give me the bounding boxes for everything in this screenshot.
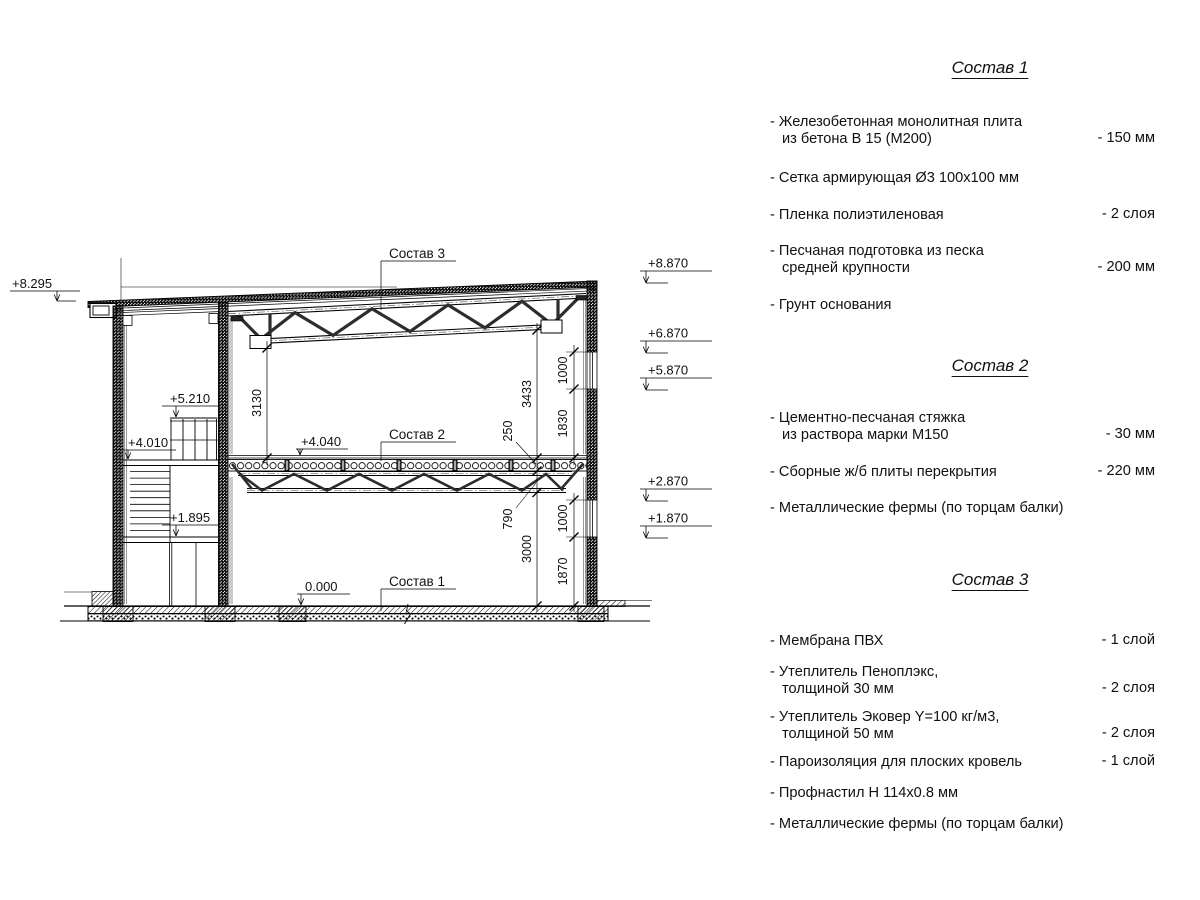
section-title-sostav1: Состав 1 bbox=[740, 58, 1200, 78]
landing-1895 bbox=[123, 537, 219, 543]
svg-text:+1.870: +1.870 bbox=[648, 511, 688, 526]
dim-1000-upper: 1000 bbox=[556, 357, 570, 385]
svg-text:+1.895: +1.895 bbox=[170, 510, 210, 525]
window-upper bbox=[587, 352, 597, 389]
dim-1870: 1870 bbox=[556, 558, 570, 586]
layer-item: - Песчаная подготовка из песка средней к… bbox=[770, 243, 1155, 277]
elevation-marks-internal: +8.295 +5.210 +4.010 +4.040 +1.895 bbox=[10, 276, 350, 605]
dimension-chain-3130: 3130 bbox=[250, 341, 272, 465]
dim-1830: 1830 bbox=[556, 410, 570, 438]
layer-value: - 150 мм bbox=[1098, 130, 1155, 147]
upper-roof-truss bbox=[228, 294, 587, 349]
layer-value: - 2 слоя bbox=[1102, 206, 1155, 223]
layer-item: - Сборные ж/б плиты перекрытия - 220 мм bbox=[770, 464, 1155, 481]
dim-790: 790 bbox=[501, 509, 515, 530]
layer-value: - 1 слой bbox=[1102, 753, 1155, 770]
elevation-marks-right: +8.870 +6.870 +5.870 +2.870 bbox=[640, 256, 712, 539]
elevation-6870: +6.870 bbox=[640, 326, 712, 354]
foundation-block bbox=[578, 606, 604, 622]
section-title-sostav3: Состав 3 bbox=[740, 570, 1200, 590]
foundation-block bbox=[279, 606, 306, 622]
svg-text:+6.870: +6.870 bbox=[648, 326, 688, 341]
svg-text:Состав 3: Состав 3 bbox=[389, 246, 445, 261]
elevation-4040: +4.040 bbox=[296, 434, 348, 455]
stair-treads bbox=[130, 466, 170, 543]
foundation-block bbox=[205, 606, 235, 622]
dim-3130: 3130 bbox=[250, 389, 264, 417]
svg-text:+2.870: +2.870 bbox=[648, 474, 688, 489]
right-wall-lower bbox=[587, 537, 597, 606]
landing-4010 bbox=[123, 460, 219, 466]
ground-floor-slab bbox=[60, 592, 652, 625]
construction-section-sheet: 3130 3433 250 790 3000 1000 1830 1000 18… bbox=[0, 0, 1200, 900]
elevation-8870: +8.870 bbox=[640, 256, 712, 284]
svg-text:+8.295: +8.295 bbox=[12, 276, 52, 291]
layer-item: - Пленка полиэтиленовая - 2 слоя bbox=[770, 207, 1155, 224]
section-title-sostav2: Состав 2 bbox=[740, 356, 1200, 376]
layer-item: - Сетка армирующая Ø3 100х100 мм bbox=[770, 170, 1155, 187]
svg-text:+4.010: +4.010 bbox=[128, 435, 168, 450]
svg-text:0.000: 0.000 bbox=[305, 579, 338, 594]
layer-value: - 200 мм bbox=[1098, 259, 1155, 276]
svg-text:Состав 1: Состав 1 bbox=[389, 574, 445, 589]
left-wall bbox=[113, 306, 123, 606]
svg-text:+5.210: +5.210 bbox=[170, 391, 210, 406]
svg-text:+4.040: +4.040 bbox=[301, 434, 341, 449]
svg-text:+8.870: +8.870 bbox=[648, 256, 688, 271]
layer-value: - 30 мм bbox=[1106, 426, 1155, 443]
elevation-1870: +1.870 bbox=[640, 511, 712, 539]
middle-wall bbox=[219, 302, 229, 606]
layer-item: - Цементно-песчаная стяжка из раствора м… bbox=[770, 410, 1155, 444]
elevation-5210: +5.210 bbox=[162, 391, 218, 417]
dim-3433: 3433 bbox=[520, 380, 534, 408]
dim-3000: 3000 bbox=[520, 535, 534, 563]
layer-value: - 2 слоя bbox=[1102, 680, 1155, 697]
layer-value: - 2 слоя bbox=[1102, 725, 1155, 742]
layer-value: - 1 слой bbox=[1102, 632, 1155, 649]
dim-250: 250 bbox=[501, 421, 515, 442]
building-section-drawing: 3130 3433 250 790 3000 1000 1830 1000 18… bbox=[0, 0, 740, 900]
layer-item: - Пароизоляция для плоских кровель - 1 с… bbox=[770, 754, 1155, 771]
left-bay-ceiling bbox=[123, 309, 219, 326]
layer-item: - Металлические фермы (по торцам балки) bbox=[770, 816, 1155, 833]
floor-slab-package bbox=[228, 456, 587, 472]
elevation-5870: +5.870 bbox=[640, 363, 712, 391]
apron-right bbox=[597, 601, 625, 607]
elevation-0000: 0.000 bbox=[297, 579, 350, 605]
eaves-gutter-box bbox=[90, 304, 116, 318]
understair-partition bbox=[170, 543, 197, 606]
layer-item: - Утеплитель Пеноплэкс, толщиной 30 мм -… bbox=[770, 664, 1155, 698]
layer-item: - Металлические фермы (по торцам балки) bbox=[770, 500, 1155, 517]
foundation-block bbox=[103, 606, 133, 622]
right-wall-upper bbox=[587, 281, 597, 352]
layer-item: - Железобетонная монолитная плита из бет… bbox=[770, 114, 1155, 148]
railing bbox=[170, 418, 218, 460]
layer-item: - Профнастил Н 114х0.8 мм bbox=[770, 785, 1155, 802]
layer-item: - Утеплитель Эковер Y=100 кг/м3, толщино… bbox=[770, 709, 1155, 743]
layer-value: - 220 мм bbox=[1098, 463, 1155, 480]
window-lower bbox=[587, 500, 597, 537]
layer-item: - Грунт основания bbox=[770, 297, 1155, 314]
layer-item: - Мембрана ПВХ - 1 слой bbox=[770, 633, 1155, 650]
elevation-2870: +2.870 bbox=[640, 474, 712, 502]
dim-1000-lower: 1000 bbox=[556, 505, 570, 533]
dimension-chain-windows: 1000 1830 1000 1870 bbox=[556, 345, 589, 612]
svg-text:+5.870: +5.870 bbox=[648, 363, 688, 378]
elevation-4010: +4.010 bbox=[123, 435, 176, 459]
interior-finish-lines bbox=[125, 298, 586, 604]
right-wall-middle bbox=[587, 389, 597, 500]
composition-legend: Состав 1 - Железобетонная монолитная пли… bbox=[740, 0, 1200, 900]
plinth-step-left bbox=[92, 592, 113, 607]
elevation-8295: +8.295 bbox=[10, 276, 80, 301]
svg-text:Состав 2: Состав 2 bbox=[389, 427, 445, 442]
